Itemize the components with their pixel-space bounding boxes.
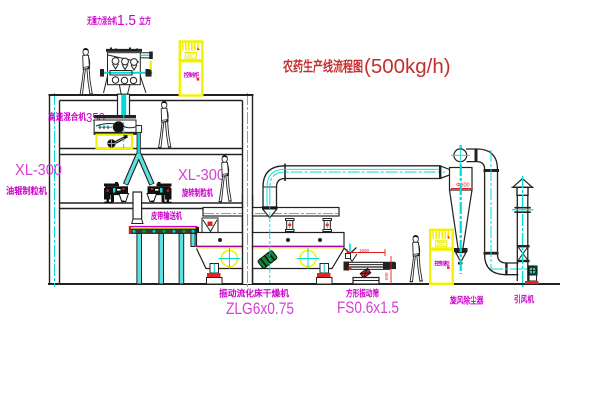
- svg-text:振动流化床干燥机: 振动流化床干燥机: [219, 288, 289, 299]
- svg-text:旋风除尘器: 旋风除尘器: [449, 295, 484, 306]
- svg-text:引风机: 引风机: [514, 294, 534, 305]
- svg-text:油辊制粒机: 油辊制粒机: [6, 185, 47, 196]
- svg-text:ZLG6x0.75: ZLG6x0.75: [226, 299, 294, 318]
- svg-text:500: 500: [384, 272, 389, 280]
- svg-text:XL-300: XL-300: [15, 162, 62, 179]
- svg-text:高速混合机: 高速混合机: [48, 111, 86, 122]
- svg-text:(500kg/h): (500kg/h): [364, 55, 451, 78]
- svg-text:FS0.6x1.5: FS0.6x1.5: [337, 298, 399, 317]
- svg-text:农药生产线流程图: 农药生产线流程图: [282, 59, 363, 75]
- svg-text:立方: 立方: [139, 15, 151, 26]
- svg-text:方形振动筛: 方形振动筛: [346, 288, 379, 299]
- svg-text:Φ600: Φ600: [456, 183, 470, 189]
- svg-text:无重力混合机: 无重力混合机: [86, 15, 117, 26]
- svg-text:1.5: 1.5: [117, 12, 136, 29]
- svg-text:XL-300: XL-300: [178, 167, 225, 184]
- svg-text:旋转制粒机: 旋转制粒机: [181, 187, 213, 198]
- svg-text:1500: 1500: [359, 248, 370, 253]
- svg-text:皮带输送机: 皮带输送机: [150, 210, 182, 221]
